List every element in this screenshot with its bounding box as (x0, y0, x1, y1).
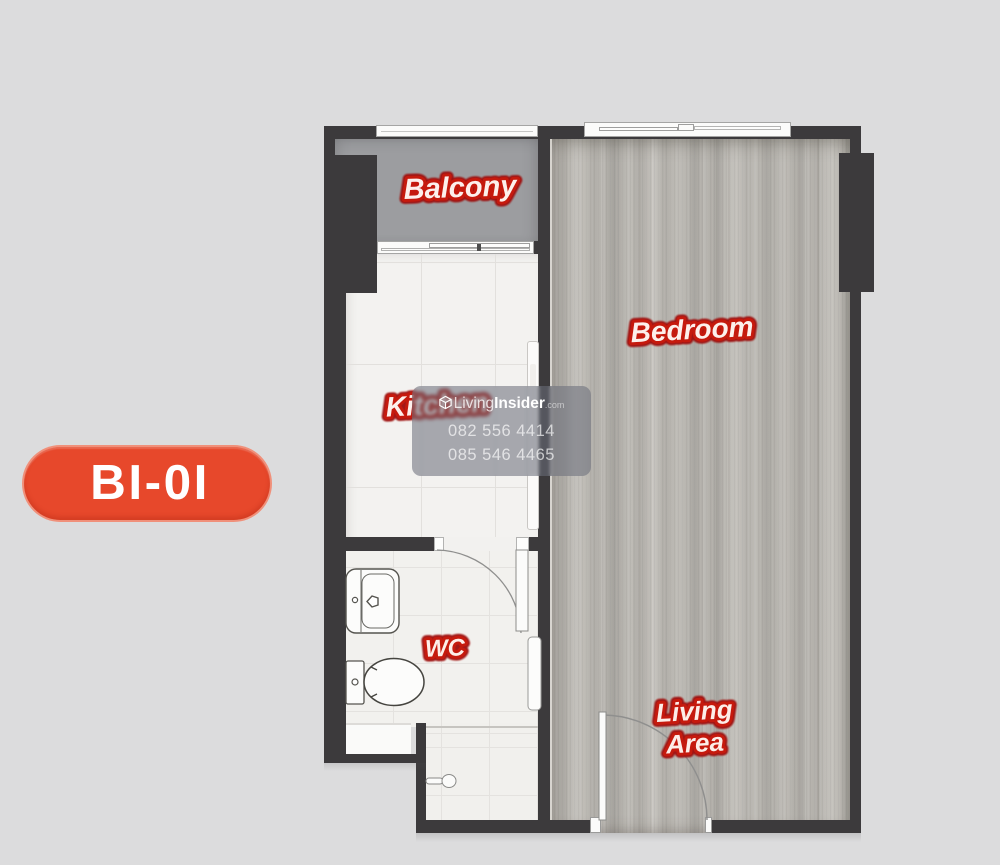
svg-text:Balcony: Balcony (403, 170, 519, 206)
svg-text:WC: WC (425, 634, 467, 662)
svg-text:Bedroom: Bedroom (630, 311, 754, 348)
svg-text:Area: Area (664, 726, 724, 759)
svg-text:Living: Living (655, 694, 733, 728)
